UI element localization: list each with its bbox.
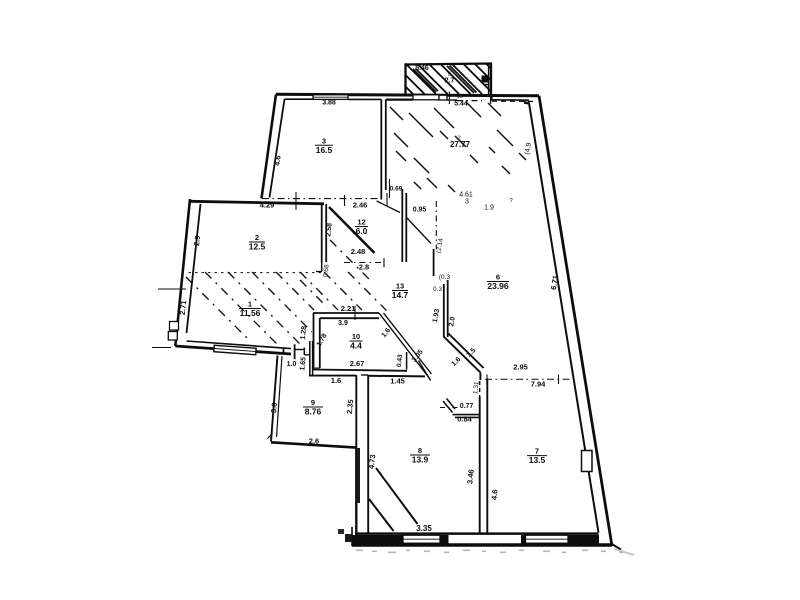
svg-text:4.4: 4.4 <box>350 341 362 351</box>
svg-text:5.46: 5.46 <box>415 65 429 72</box>
svg-text:8.76: 8.76 <box>305 407 322 417</box>
svg-text:0.77: 0.77 <box>460 403 474 410</box>
svg-text:2.48: 2.48 <box>351 247 366 256</box>
svg-text:7.94: 7.94 <box>531 380 546 389</box>
svg-text:13.9: 13.9 <box>412 455 429 465</box>
svg-text:11.56: 11.56 <box>240 308 261 318</box>
svg-text:2.58: 2.58 <box>325 223 333 237</box>
svg-text:2.8: 2.8 <box>359 263 369 272</box>
svg-text:4.61: 4.61 <box>459 192 473 199</box>
svg-text:3: 3 <box>465 199 469 206</box>
svg-text:3.46: 3.46 <box>465 469 475 484</box>
svg-text:12.5: 12.5 <box>249 242 266 252</box>
svg-text:2.6: 2.6 <box>309 437 319 446</box>
svg-text:15: 15 <box>457 94 463 100</box>
svg-text:23.96: 23.96 <box>487 281 509 291</box>
svg-text:2.71: 2.71 <box>178 300 188 315</box>
svg-text:16.5: 16.5 <box>316 145 333 155</box>
svg-text:13.5: 13.5 <box>529 455 546 465</box>
svg-text:0.43: 0.43 <box>396 354 404 368</box>
svg-text:6.0: 6.0 <box>356 226 368 236</box>
svg-text:1.65: 1.65 <box>299 357 307 371</box>
svg-text:3.35: 3.35 <box>416 524 432 533</box>
svg-text:4.6: 4.6 <box>272 155 282 166</box>
svg-text:0.68: 0.68 <box>322 264 330 278</box>
svg-text:3.9: 3.9 <box>338 320 348 327</box>
svg-text:(0.3: (0.3 <box>439 274 451 281</box>
svg-text:0.3: 0.3 <box>433 286 442 293</box>
svg-text:2.35: 2.35 <box>345 399 355 414</box>
svg-text:2.9: 2.9 <box>192 235 202 246</box>
svg-text:4.29: 4.29 <box>260 201 275 210</box>
svg-text:3.0: 3.0 <box>269 402 279 413</box>
svg-text:27.77: 27.77 <box>450 140 471 149</box>
svg-text:1.0: 1.0 <box>287 361 297 368</box>
svg-text:2.46: 2.46 <box>353 201 368 210</box>
svg-text:0.84: 0.84 <box>457 415 472 424</box>
svg-text:2.21: 2.21 <box>341 304 356 313</box>
svg-text:3.88: 3.88 <box>322 100 336 107</box>
svg-text:0.95: 0.95 <box>413 207 427 214</box>
svg-text:0.69: 0.69 <box>390 186 403 193</box>
svg-text:5.44: 5.44 <box>454 101 468 108</box>
svg-text:1.6: 1.6 <box>331 376 341 385</box>
svg-text:2.95: 2.95 <box>513 363 528 372</box>
svg-text:14.7: 14.7 <box>392 290 409 300</box>
svg-text:4.6: 4.6 <box>489 489 499 500</box>
svg-text:1.45: 1.45 <box>390 377 405 386</box>
svg-text:1.28: 1.28 <box>300 326 308 340</box>
svg-text:2.7: 2.7 <box>445 78 455 85</box>
svg-text:2.67: 2.67 <box>350 359 365 368</box>
svg-text:1.9: 1.9 <box>484 205 494 212</box>
svg-text:4.73: 4.73 <box>367 454 377 469</box>
